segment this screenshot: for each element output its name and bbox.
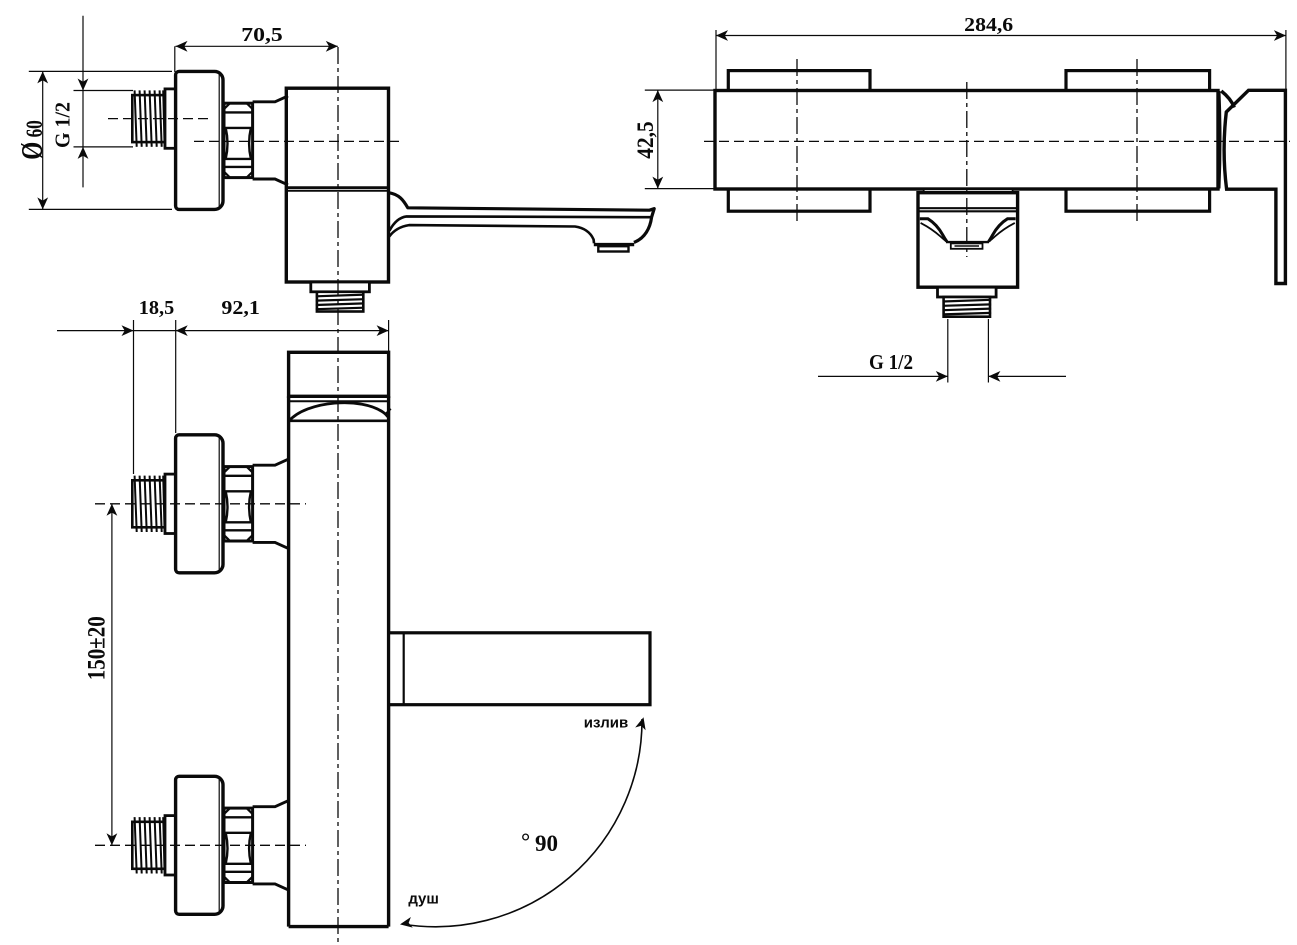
svg-text:°: ° [521,829,530,854]
svg-text:42,5: 42,5 [633,121,658,159]
svg-text:92,1: 92,1 [221,297,260,319]
svg-text:18,5: 18,5 [139,297,175,319]
svg-text:90: 90 [535,831,558,856]
svg-text:284,6: 284,6 [964,14,1013,36]
svg-text:70,5: 70,5 [241,24,283,46]
svg-text:душ: душ [408,891,439,908]
svg-text:150±20: 150±20 [84,616,111,680]
svg-text:G 1/2: G 1/2 [869,350,913,374]
svg-text:G 1/2: G 1/2 [50,102,74,148]
svg-text:излив: излив [584,715,628,732]
